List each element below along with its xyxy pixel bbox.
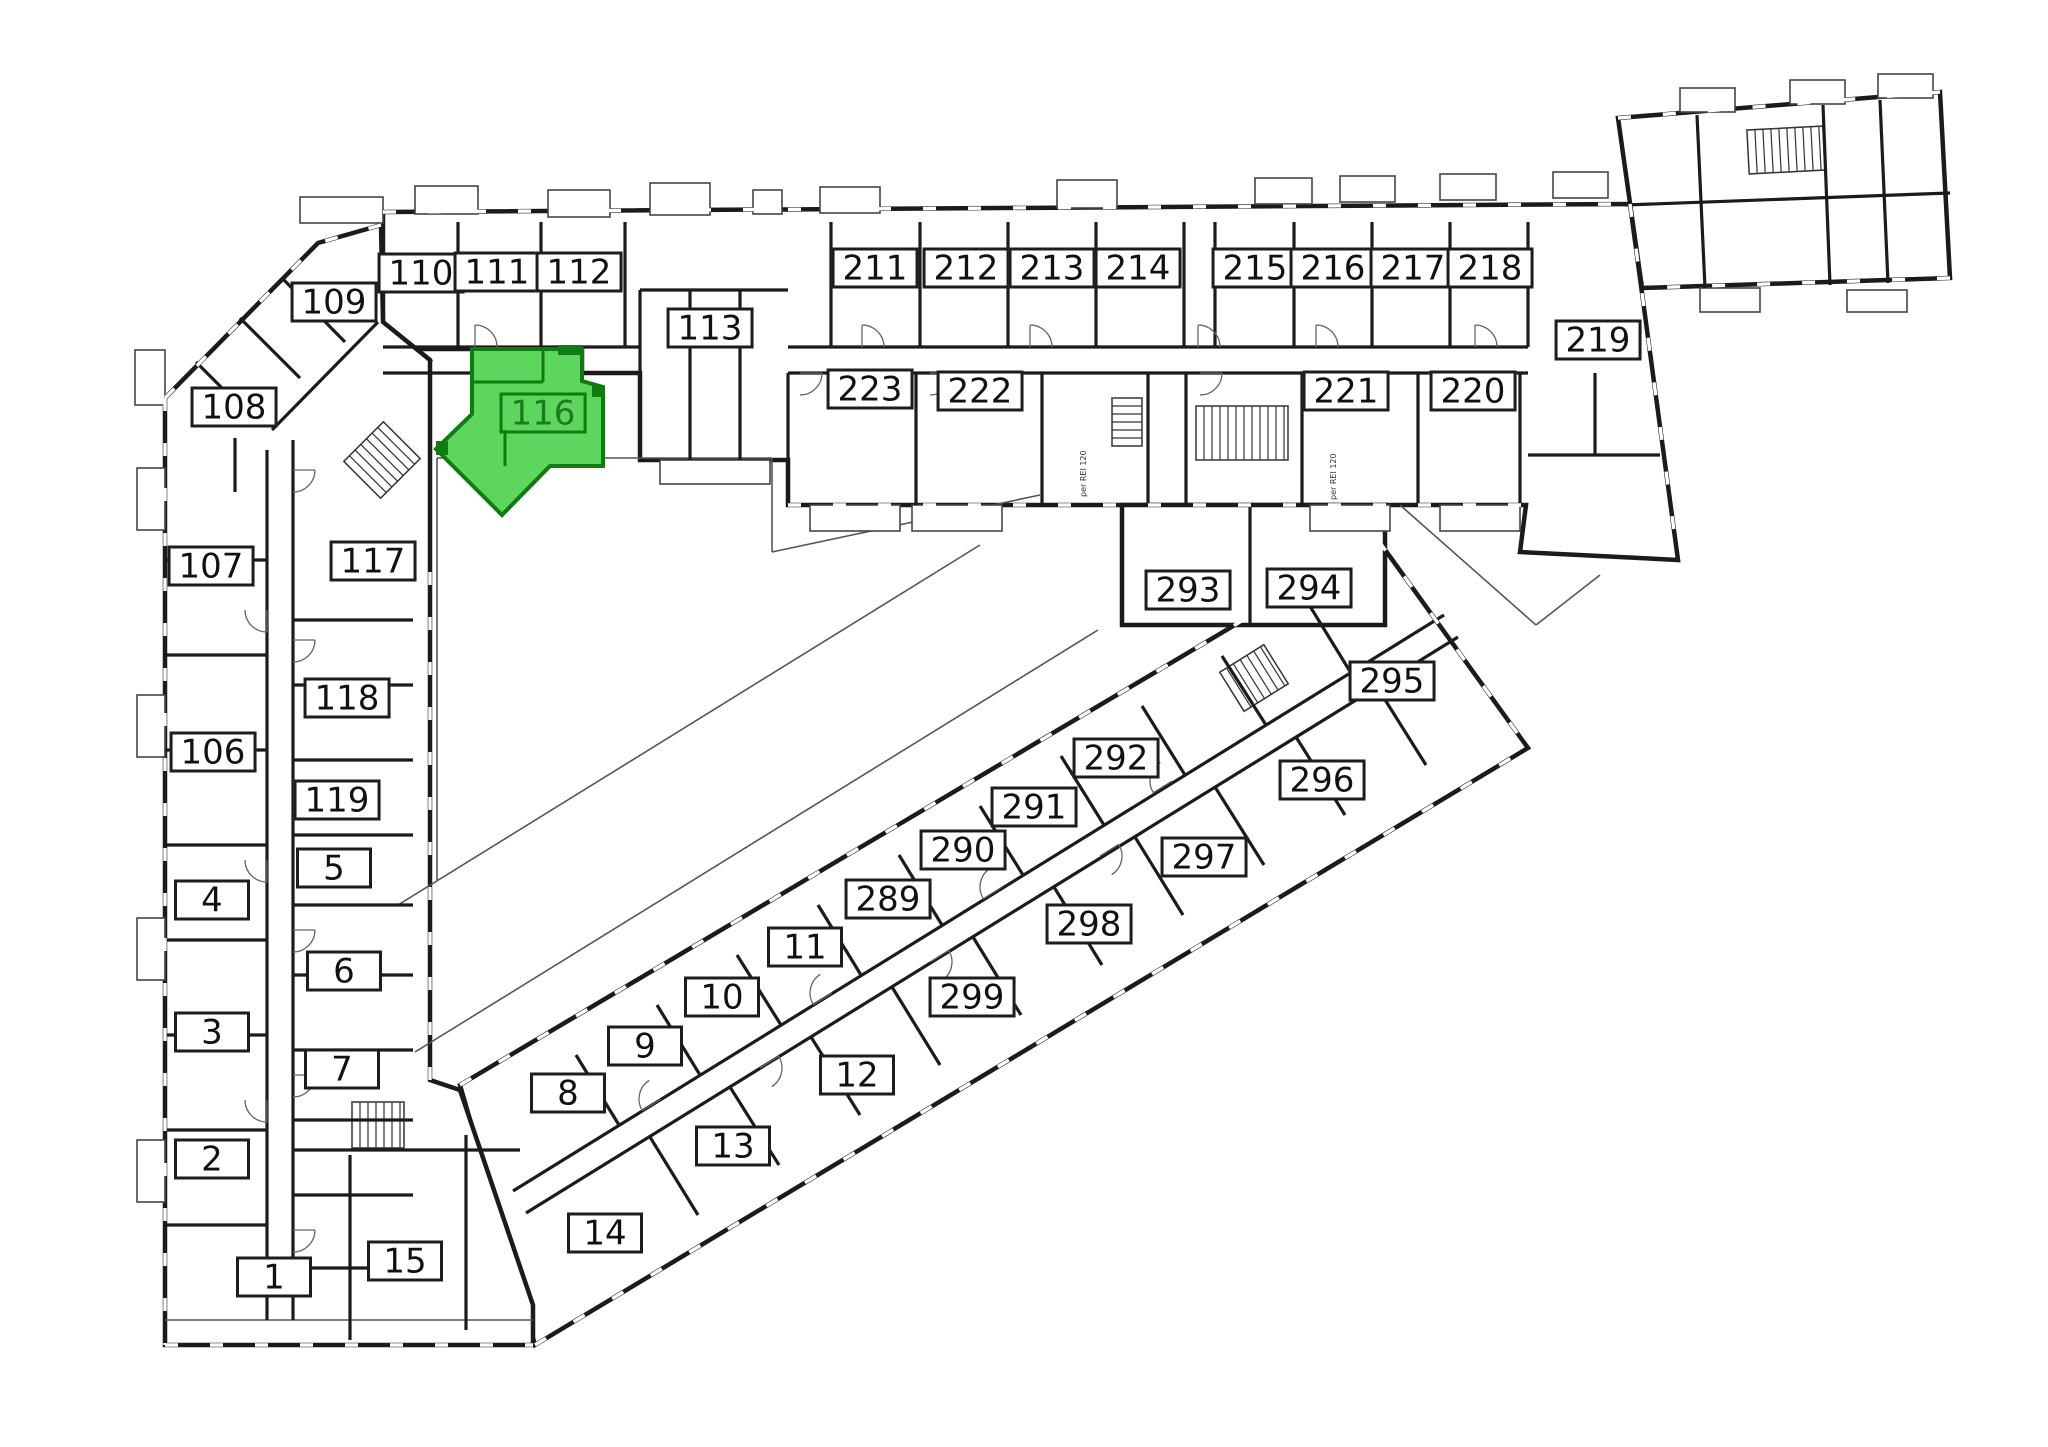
highlighted-unit-wall: [436, 441, 448, 455]
balcony: [1700, 288, 1760, 312]
unit-label-222[interactable]: 222: [937, 371, 1024, 412]
balcony: [1057, 180, 1117, 208]
unit-label-223[interactable]: 223: [827, 369, 914, 410]
unit-label-218[interactable]: 218: [1447, 248, 1534, 289]
staircase-icon: [352, 1102, 404, 1148]
balcony: [660, 460, 770, 484]
unit-label-215[interactable]: 215: [1212, 248, 1299, 289]
unit-label-113[interactable]: 113: [667, 308, 754, 349]
unit-label-216[interactable]: 216: [1290, 248, 1377, 289]
unit-label-107[interactable]: 107: [168, 546, 255, 587]
balcony: [137, 1140, 165, 1202]
unit-label-13[interactable]: 13: [695, 1126, 771, 1167]
balcony: [1553, 172, 1608, 198]
balcony: [137, 918, 165, 980]
unit-label-116[interactable]: 116: [500, 393, 587, 434]
balcony: [1340, 176, 1395, 202]
unit-label-211[interactable]: 211: [832, 248, 919, 289]
building-block-outline: [1618, 92, 1950, 288]
unit-label-112[interactable]: 112: [536, 252, 623, 293]
balcony: [1440, 505, 1520, 531]
unit-label-111[interactable]: 111: [454, 252, 541, 293]
balcony: [820, 187, 880, 213]
unit-label-217[interactable]: 217: [1370, 248, 1457, 289]
balcony: [137, 468, 165, 530]
unit-label-8[interactable]: 8: [530, 1073, 606, 1114]
unit-label-220[interactable]: 220: [1430, 371, 1517, 412]
balcony: [1847, 290, 1907, 312]
floorplan-drawing: per REI 120per REI 120: [0, 0, 2048, 1447]
unit-label-3[interactable]: 3: [174, 1012, 250, 1053]
unit-label-9[interactable]: 9: [607, 1026, 683, 1067]
balcony: [1680, 88, 1735, 112]
unit-label-221[interactable]: 221: [1303, 371, 1390, 412]
staircase-icon: [1196, 406, 1288, 460]
unit-label-5[interactable]: 5: [296, 848, 372, 889]
unit-label-293[interactable]: 293: [1145, 570, 1232, 611]
unit-label-213[interactable]: 213: [1009, 248, 1096, 289]
balcony: [1440, 174, 1496, 200]
unit-label-1[interactable]: 1: [236, 1257, 312, 1298]
unit-label-289[interactable]: 289: [845, 879, 932, 920]
unit-label-110[interactable]: 110: [378, 253, 465, 294]
unit-label-291[interactable]: 291: [991, 787, 1078, 828]
balcony: [1790, 80, 1845, 104]
unit-label-11[interactable]: 11: [767, 927, 843, 968]
balcony: [912, 505, 1002, 531]
unit-label-119[interactable]: 119: [294, 780, 381, 821]
staircase-icon: [1112, 398, 1142, 446]
wall: [526, 637, 1458, 1213]
balcony: [1310, 505, 1390, 531]
fire-rating-annotation: per REI 120: [1329, 453, 1338, 500]
unit-label-108[interactable]: 108: [191, 387, 278, 428]
unit-label-109[interactable]: 109: [291, 282, 378, 323]
unit-label-117[interactable]: 117: [330, 541, 417, 582]
unit-label-299[interactable]: 299: [929, 977, 1016, 1018]
unit-label-292[interactable]: 292: [1073, 738, 1160, 779]
highlighted-unit-wall: [592, 385, 604, 397]
highlighted-unit-wall: [558, 345, 582, 355]
unit-label-2[interactable]: 2: [174, 1139, 250, 1180]
balcony: [1878, 74, 1933, 98]
balcony: [753, 190, 782, 214]
unit-label-10[interactable]: 10: [684, 977, 760, 1018]
unit-label-7[interactable]: 7: [304, 1049, 380, 1090]
unit-label-14[interactable]: 14: [567, 1213, 643, 1254]
unit-label-15[interactable]: 15: [367, 1241, 443, 1282]
unit-label-294[interactable]: 294: [1266, 568, 1353, 609]
floor-plan-canvas: per REI 120per REI 120110111112109113211…: [0, 0, 2048, 1447]
unit-label-6[interactable]: 6: [306, 951, 382, 992]
unit-label-106[interactable]: 106: [170, 732, 257, 773]
balcony: [810, 505, 900, 531]
unit-label-296[interactable]: 296: [1279, 760, 1366, 801]
unit-label-219[interactable]: 219: [1555, 320, 1642, 361]
unit-label-295[interactable]: 295: [1349, 661, 1436, 702]
unit-label-118[interactable]: 118: [304, 678, 391, 719]
unit-label-212[interactable]: 212: [923, 248, 1010, 289]
unit-label-298[interactable]: 298: [1046, 904, 1133, 945]
balcony: [415, 186, 478, 214]
balcony: [1255, 178, 1312, 204]
balcony: [135, 350, 165, 405]
fire-rating-annotation: per REI 120: [1079, 450, 1088, 497]
unit-label-4[interactable]: 4: [174, 880, 250, 921]
unit-label-290[interactable]: 290: [920, 830, 1007, 871]
unit-label-297[interactable]: 297: [1161, 837, 1248, 878]
balcony: [300, 197, 383, 223]
balcony: [548, 190, 610, 217]
unit-label-12[interactable]: 12: [819, 1055, 895, 1096]
balcony: [137, 695, 165, 757]
courtyard-line: [1536, 575, 1600, 625]
unit-label-214[interactable]: 214: [1095, 248, 1182, 289]
staircase-icon: [1747, 126, 1825, 174]
